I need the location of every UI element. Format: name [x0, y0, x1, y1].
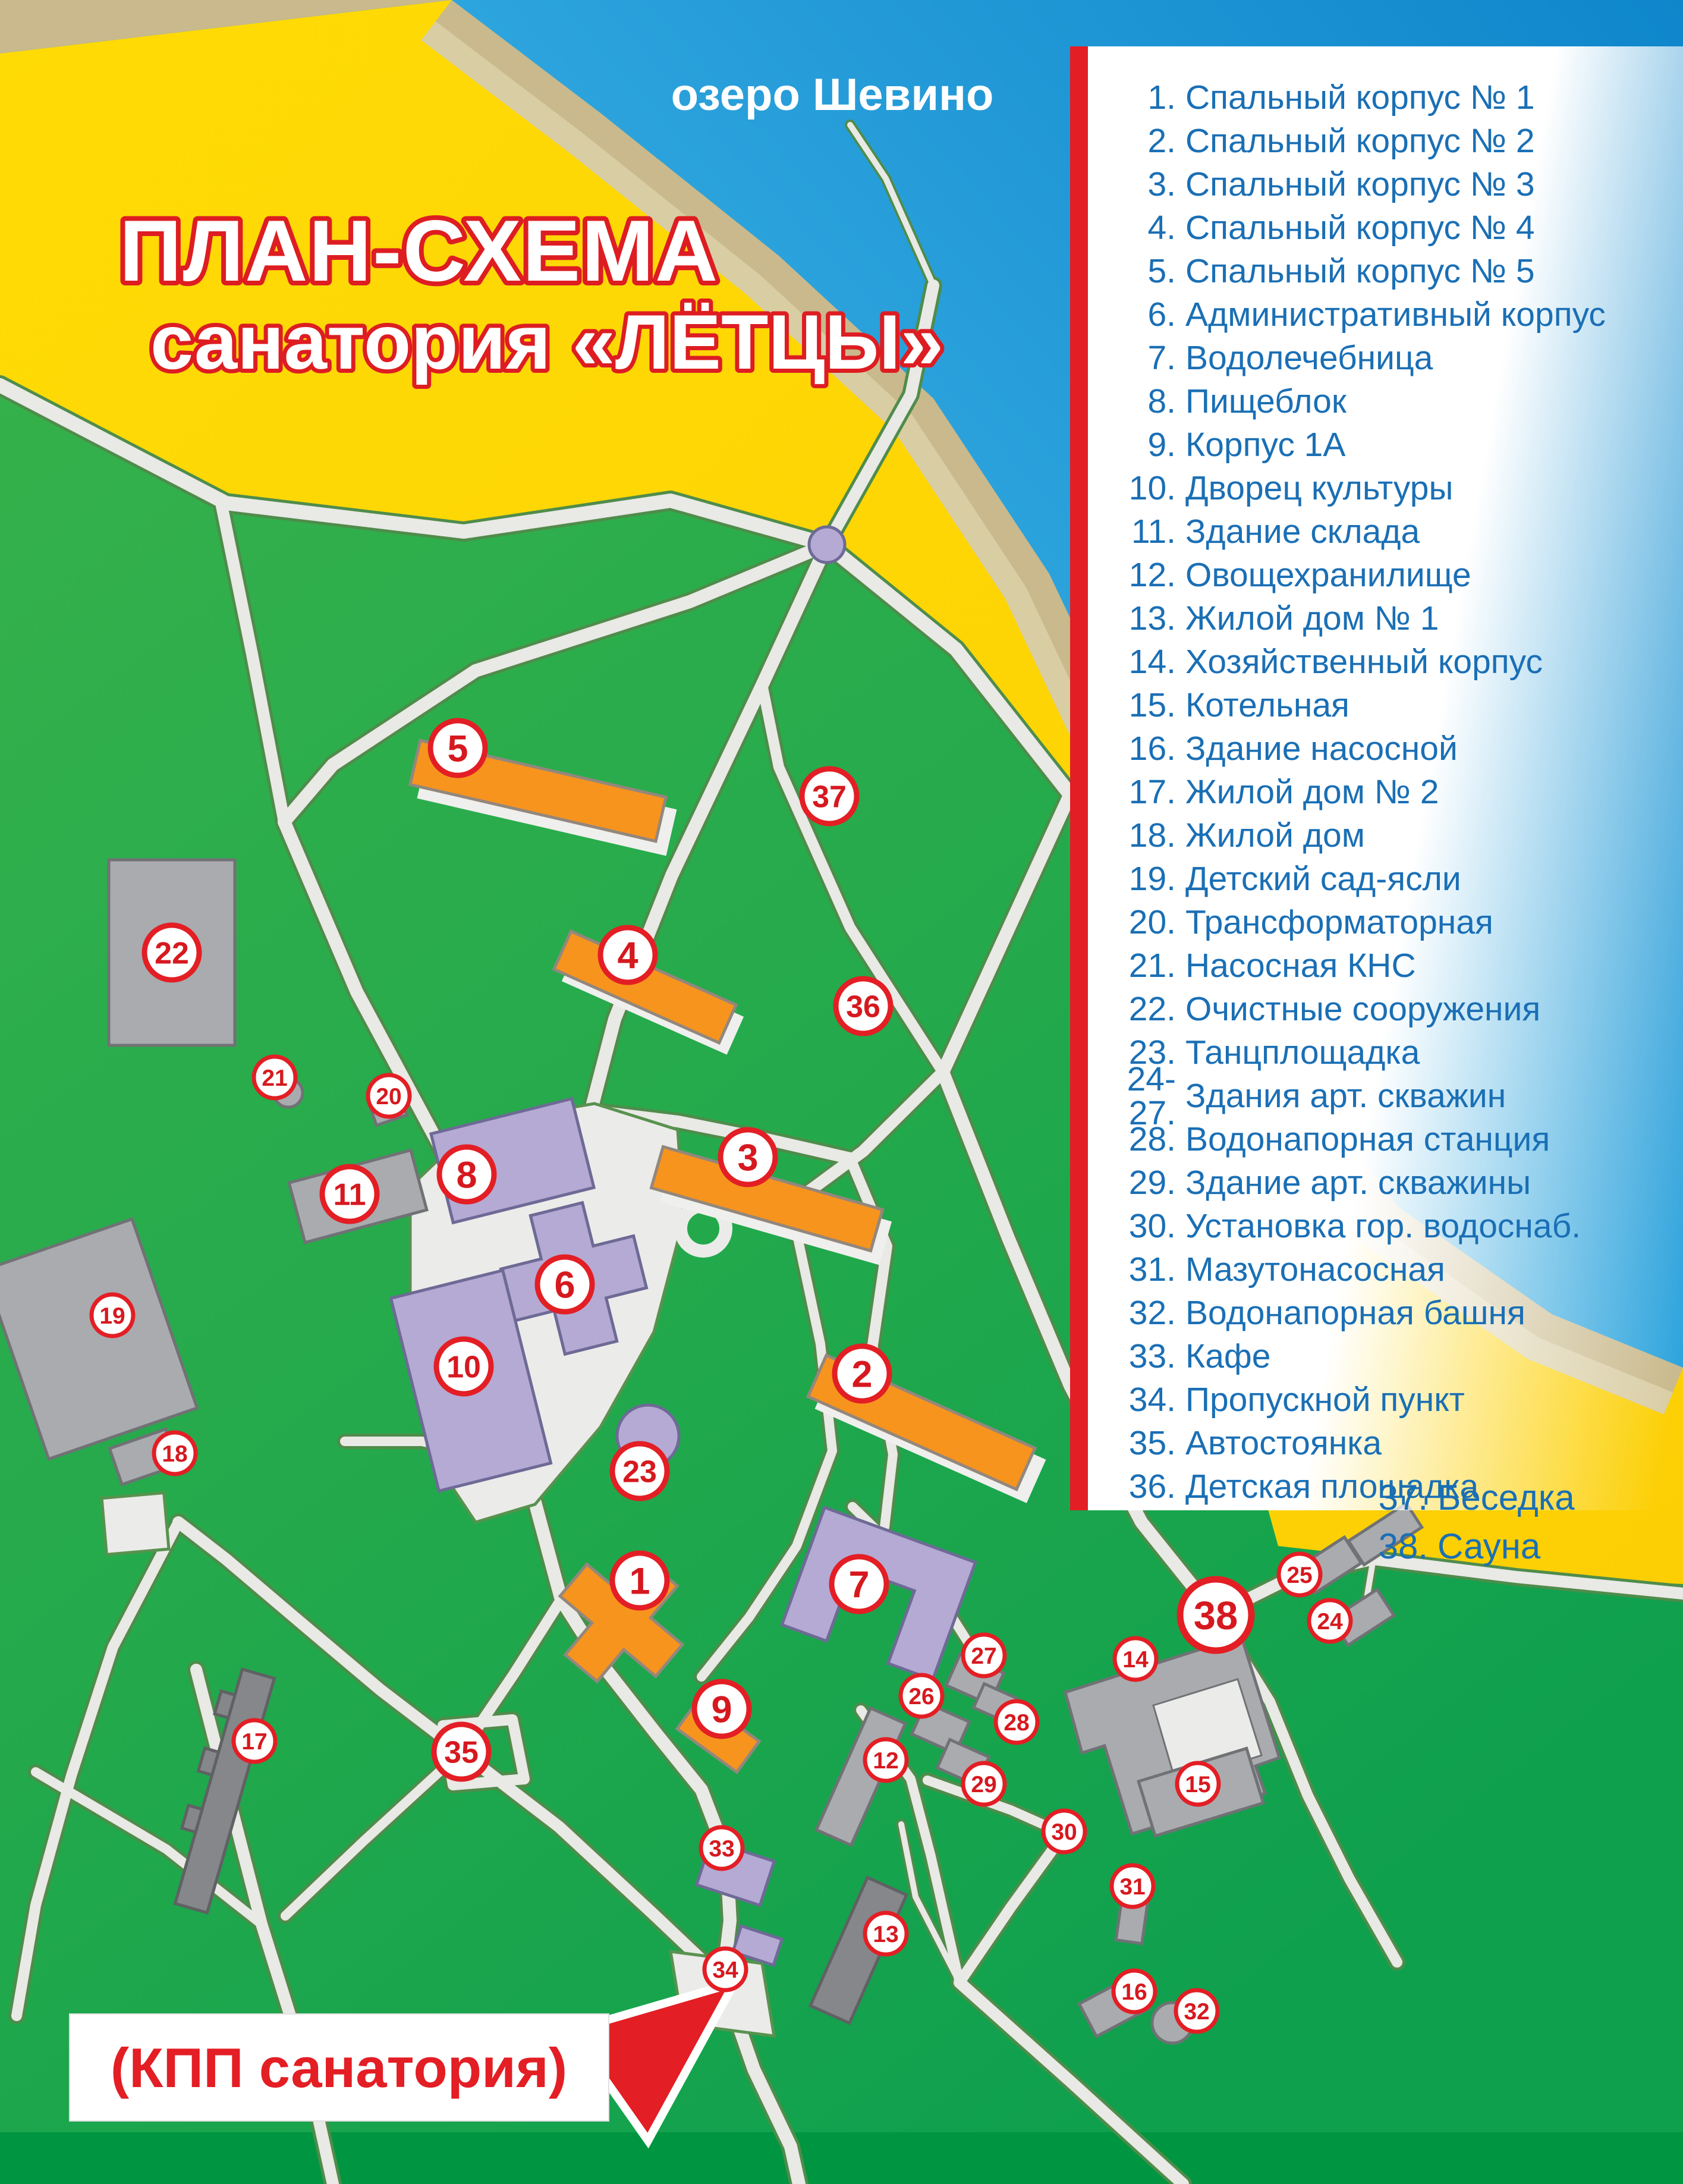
- legend-item-label: Хозяйственный корпус: [1185, 645, 1543, 679]
- legend-item-23: 23.Танцплощадка: [1088, 1031, 1683, 1074]
- svg-text:17: 17: [241, 1729, 267, 1755]
- legend-item-label: Сауна: [1437, 1529, 1540, 1564]
- legend-panel: 1.Спальный корпус № 12.Спальный корпус №…: [1088, 46, 1683, 1510]
- legend-item-number: 38.: [1361, 1529, 1428, 1564]
- svg-text:4: 4: [617, 935, 638, 977]
- legend-item-number: 2.: [1088, 124, 1176, 158]
- legend-item-13: 13.Жилой дом № 1: [1088, 597, 1683, 640]
- legend-item-4: 4.Спальный корпус № 4: [1088, 206, 1683, 250]
- marker-36: 36: [836, 979, 891, 1033]
- svg-text:28: 28: [1003, 1710, 1029, 1736]
- marker-31: 31: [1112, 1865, 1153, 1907]
- legend-item-number: 33.: [1088, 1340, 1176, 1374]
- legend-item-10: 10.Дворец культуры: [1088, 467, 1683, 510]
- marker-26: 26: [901, 1675, 942, 1717]
- legend-item-number: 4.: [1088, 211, 1176, 245]
- marker-13: 13: [865, 1913, 907, 1954]
- legend-item-number: 12.: [1088, 558, 1176, 592]
- legend-item-33: 33.Кафе: [1088, 1335, 1683, 1378]
- marker-4: 4: [600, 928, 655, 982]
- marker-22: 22: [144, 925, 199, 980]
- legend-item-number: 21.: [1088, 949, 1176, 983]
- marker-20: 20: [368, 1075, 410, 1117]
- marker-28: 28: [996, 1701, 1037, 1743]
- marker-7: 7: [832, 1557, 886, 1611]
- legend-item-12: 12.Овощехранилище: [1088, 554, 1683, 597]
- svg-text:38: 38: [1194, 1594, 1238, 1638]
- legend-item-number: 35.: [1088, 1426, 1176, 1460]
- lake-label: озеро Шевино: [671, 70, 994, 120]
- legend-item-label: Овощехранилище: [1185, 558, 1471, 592]
- legend-item-9: 9.Корпус 1А: [1088, 423, 1683, 467]
- legend-item-34: 34.Пропускной пункт: [1088, 1378, 1683, 1422]
- legend-item-label: Установка гор. водоснаб.: [1185, 1209, 1581, 1243]
- marker-15: 15: [1177, 1763, 1219, 1805]
- legend-item-number: 8.: [1088, 385, 1176, 419]
- svg-text:7: 7: [848, 1564, 869, 1606]
- legend-item-label: Спальный корпус № 5: [1185, 254, 1535, 288]
- marker-5: 5: [430, 721, 485, 775]
- legend-item-label: Дворец культуры: [1185, 472, 1453, 505]
- marker-6: 6: [537, 1257, 592, 1312]
- marker-37: 37: [802, 769, 857, 824]
- legend-list: 1.Спальный корпус № 12.Спальный корпус №…: [1088, 76, 1683, 1509]
- legend-item-37: 37.Беседка: [1361, 1473, 1575, 1522]
- legend-item-number: 6.: [1088, 298, 1176, 332]
- legend-item-5: 5.Спальный корпус № 5: [1088, 250, 1683, 293]
- marker-8: 8: [439, 1147, 494, 1202]
- legend-item-24-27: 24-27.Здания арт. скважин: [1088, 1074, 1683, 1118]
- svg-text:27: 27: [971, 1644, 996, 1669]
- marker-30: 30: [1043, 1811, 1085, 1852]
- marker-27: 27: [963, 1635, 1005, 1676]
- beach-pavilion-dot: [809, 527, 845, 563]
- svg-text:29: 29: [971, 1772, 996, 1798]
- legend-item-label: Спальный корпус № 4: [1185, 211, 1535, 245]
- svg-text:9: 9: [711, 1689, 732, 1731]
- legend-item-15: 15.Котельная: [1088, 684, 1683, 727]
- legend-item-label: Водолечебница: [1185, 341, 1433, 375]
- legend-item-label: Детский сад-ясли: [1185, 862, 1461, 896]
- marker-14: 14: [1115, 1638, 1156, 1680]
- svg-text:33: 33: [709, 1836, 734, 1862]
- legend-item-label: Водонапорная башня: [1185, 1296, 1525, 1330]
- bottom-dark-band: [0, 2132, 1683, 2184]
- legend-item-label: Пищеблок: [1185, 385, 1347, 419]
- svg-text:15: 15: [1185, 1772, 1210, 1798]
- legend-item-label: Жилой дом № 2: [1185, 775, 1439, 809]
- legend-item-number: 11.: [1088, 515, 1176, 549]
- legend-item-label: Насосная КНС: [1185, 949, 1416, 983]
- map-title-line2: санатория «ЛЁТЦЫ»: [150, 298, 943, 385]
- legend-item-label: Здание насосной: [1185, 732, 1458, 766]
- svg-text:1: 1: [629, 1561, 650, 1602]
- legend-item-number: 19.: [1088, 862, 1176, 896]
- svg-text:25: 25: [1286, 1563, 1312, 1588]
- svg-text:8: 8: [456, 1155, 477, 1196]
- svg-text:3: 3: [737, 1137, 758, 1179]
- svg-text:21: 21: [262, 1066, 287, 1091]
- legend-item-number: 28.: [1088, 1123, 1176, 1157]
- svg-text:18: 18: [162, 1441, 187, 1467]
- marker-29: 29: [963, 1763, 1005, 1805]
- legend-item-label: Очистные сооружения: [1185, 992, 1540, 1026]
- legend-item-19: 19.Детский сад-ясли: [1088, 857, 1683, 901]
- legend-item-label: Трансформаторная: [1185, 906, 1493, 939]
- marker-9: 9: [694, 1682, 749, 1736]
- legend-item-number: 34.: [1088, 1383, 1176, 1417]
- legend-item-7: 7.Водолечебница: [1088, 337, 1683, 380]
- legend-item-11: 11.Здание склада: [1088, 510, 1683, 554]
- legend-item-label: Кафе: [1185, 1340, 1271, 1374]
- legend-item-label: Танцплощадка: [1185, 1036, 1420, 1070]
- legend-item-30: 30.Установка гор. водоснаб.: [1088, 1205, 1683, 1248]
- marker-25: 25: [1279, 1554, 1320, 1595]
- svg-text:30: 30: [1051, 1820, 1077, 1845]
- legend-item-number: 36.: [1088, 1470, 1176, 1504]
- resort-map-poster: (КПП санатория) озеро Шевино ПЛАН-СХЕМА …: [0, 0, 1683, 2184]
- legend-item-21: 21.Насосная КНС: [1088, 944, 1683, 988]
- legend-item-label: Административный корпус: [1185, 298, 1606, 332]
- marker-17: 17: [234, 1720, 275, 1762]
- legend-item-label: Здание арт. скважины: [1185, 1166, 1531, 1200]
- marker-21: 21: [254, 1057, 295, 1098]
- legend-item-number: 16.: [1088, 732, 1176, 766]
- legend-item-number: 37.: [1361, 1480, 1428, 1516]
- legend-item-number: 3.: [1088, 168, 1176, 202]
- marker-35: 35: [434, 1724, 489, 1779]
- legend-item-label: Котельная: [1185, 689, 1349, 722]
- svg-text:31: 31: [1119, 1874, 1145, 1900]
- legend-item-number: 17.: [1088, 775, 1176, 809]
- marker-12: 12: [865, 1739, 907, 1781]
- legend-extra-list: 37.Беседка38.Сауна: [1361, 1473, 1575, 1571]
- legend-item-31: 31.Мазутонасосная: [1088, 1248, 1683, 1291]
- legend-item-number: 9.: [1088, 428, 1176, 462]
- svg-text:19: 19: [99, 1303, 125, 1329]
- marker-18: 18: [154, 1432, 196, 1474]
- legend-item-number: 18.: [1088, 819, 1176, 853]
- legend-item-22: 22.Очистные сооружения: [1088, 988, 1683, 1031]
- marker-38: 38: [1180, 1579, 1251, 1651]
- marker-19: 19: [92, 1294, 133, 1336]
- svg-text:2: 2: [851, 1354, 872, 1396]
- marker-33: 33: [701, 1827, 743, 1869]
- svg-text:12: 12: [873, 1748, 898, 1774]
- marker-10: 10: [436, 1339, 491, 1394]
- marker-32: 32: [1176, 1990, 1218, 2032]
- legend-item-number: 13.: [1088, 602, 1176, 636]
- svg-text:37: 37: [812, 780, 847, 815]
- legend-item-label: Мазутонасосная: [1185, 1253, 1445, 1287]
- legend-item-number: 31.: [1088, 1253, 1176, 1287]
- svg-text:14: 14: [1122, 1647, 1149, 1673]
- legend-item-label: Корпус 1А: [1185, 428, 1345, 462]
- legend-item-number: 32.: [1088, 1296, 1176, 1330]
- legend-item-label: Здания арт. скважин: [1185, 1079, 1506, 1113]
- svg-text:20: 20: [376, 1084, 401, 1110]
- marker-24: 24: [1309, 1600, 1351, 1642]
- legend-item-number: 20.: [1088, 906, 1176, 939]
- legend-item-number: 5.: [1088, 254, 1176, 288]
- svg-text:23: 23: [622, 1455, 657, 1489]
- legend-item-17: 17.Жилой дом № 2: [1088, 771, 1683, 814]
- legend-item-label: Спальный корпус № 2: [1185, 124, 1535, 158]
- legend-item-number: 15.: [1088, 689, 1176, 722]
- marker-23: 23: [612, 1444, 667, 1498]
- svg-text:6: 6: [554, 1265, 575, 1306]
- svg-text:22: 22: [155, 937, 189, 971]
- marker-34: 34: [704, 1949, 746, 1990]
- legend-item-29: 29.Здание арт. скважины: [1088, 1161, 1683, 1205]
- legend-item-label: Автостоянка: [1185, 1426, 1382, 1460]
- legend-item-16: 16.Здание насосной: [1088, 727, 1683, 771]
- legend-item-3: 3.Спальный корпус № 3: [1088, 163, 1683, 206]
- svg-text:16: 16: [1121, 1979, 1147, 2005]
- legend-item-35: 35.Автостоянка: [1088, 1422, 1683, 1465]
- svg-text:32: 32: [1184, 1999, 1209, 2025]
- legend-item-label: Спальный корпус № 1: [1185, 81, 1535, 115]
- marker-11: 11: [322, 1167, 377, 1221]
- svg-text:36: 36: [846, 990, 880, 1025]
- legend-item-label: Спальный корпус № 3: [1185, 168, 1535, 202]
- legend-item-1: 1.Спальный корпус № 1: [1088, 76, 1683, 120]
- legend-red-stripe: [1070, 46, 1088, 1510]
- legend-item-32: 32.Водонапорная башня: [1088, 1291, 1683, 1335]
- legend-item-number: 30.: [1088, 1209, 1176, 1243]
- legend-item-38: 38.Сауна: [1361, 1522, 1575, 1571]
- marker-1: 1: [612, 1553, 667, 1608]
- map-title-line1: ПЛАН-СХЕМА: [119, 202, 719, 299]
- legend-item-label: Беседка: [1437, 1480, 1575, 1516]
- legend-item-number: 22.: [1088, 992, 1176, 1026]
- svg-text:35: 35: [444, 1736, 479, 1770]
- legend-item-label: Жилой дом: [1185, 819, 1365, 853]
- legend-item-number: 14.: [1088, 645, 1176, 679]
- legend-item-label: Жилой дом № 1: [1185, 602, 1439, 636]
- marker-2: 2: [835, 1346, 889, 1401]
- legend-item-label: Пропускной пункт: [1185, 1383, 1465, 1417]
- marker-16: 16: [1113, 1971, 1155, 2012]
- legend-item-2: 2.Спальный корпус № 2: [1088, 120, 1683, 163]
- svg-text:10: 10: [446, 1350, 481, 1385]
- legend-item-14: 14.Хозяйственный корпус: [1088, 640, 1683, 684]
- legend-item-28: 28.Водонапорная станция: [1088, 1118, 1683, 1161]
- yard-18: [102, 1493, 169, 1555]
- legend-item-8: 8.Пищеблок: [1088, 380, 1683, 423]
- legend-item-number: 29.: [1088, 1166, 1176, 1200]
- svg-text:26: 26: [908, 1684, 934, 1710]
- kpp-label: (КПП санатория): [111, 2037, 567, 2099]
- legend-item-18: 18.Жилой дом: [1088, 814, 1683, 857]
- svg-text:5: 5: [447, 728, 468, 770]
- svg-text:34: 34: [712, 1957, 738, 1983]
- legend-item-6: 6.Административный корпус: [1088, 293, 1683, 337]
- legend-item-number: 7.: [1088, 341, 1176, 375]
- svg-text:13: 13: [873, 1922, 898, 1947]
- legend-item-number: 1.: [1088, 81, 1176, 115]
- marker-3: 3: [721, 1130, 775, 1184]
- legend-item-label: Водонапорная станция: [1185, 1123, 1550, 1157]
- legend-item-number: 10.: [1088, 472, 1176, 505]
- svg-text:11: 11: [334, 1178, 366, 1212]
- svg-text:24: 24: [1317, 1609, 1343, 1635]
- legend-item-20: 20.Трансформаторная: [1088, 901, 1683, 944]
- legend-item-label: Здание склада: [1185, 515, 1420, 549]
